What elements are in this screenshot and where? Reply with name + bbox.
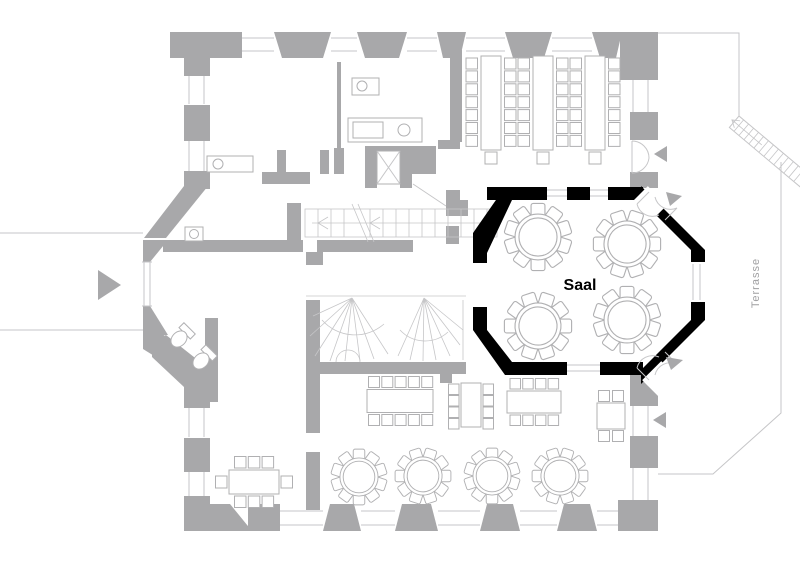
saal-round-table <box>504 203 572 270</box>
entrance-door <box>142 262 152 306</box>
round-table <box>464 448 521 504</box>
terrace-entry-arrow-bottom <box>653 412 666 428</box>
round-table <box>387 441 458 512</box>
entrance-arrow <box>98 270 121 300</box>
terrace-label: Terrasse <box>750 258 762 308</box>
saal-round-table <box>593 286 661 353</box>
arch-door <box>336 350 360 362</box>
floor-plan: Terrasse <box>0 0 800 572</box>
elevator <box>365 146 436 188</box>
horizontal-table-8 <box>507 379 561 426</box>
vertical-table-8 <box>449 383 494 429</box>
table-8-seats <box>216 457 293 508</box>
saal-door-arrow-bottom <box>666 357 683 370</box>
terrace-stairs <box>727 114 800 187</box>
restaurant-tables <box>216 377 626 512</box>
seminar-table <box>466 56 516 164</box>
terrace-entry-arrow-top <box>654 146 667 162</box>
long-table-10 <box>367 377 433 426</box>
main-staircase <box>305 204 497 242</box>
seminar-table <box>518 56 568 164</box>
saal-bay-window <box>687 262 707 302</box>
terrace-edge-top <box>658 33 739 116</box>
partition-line <box>413 184 446 206</box>
floor-plan-page: Terrasse <box>0 0 800 572</box>
round-table <box>331 449 388 505</box>
saal-door-arrow-top <box>666 192 682 206</box>
seminar-double-door <box>632 141 649 173</box>
round-table <box>524 441 595 512</box>
square-table-4 <box>597 391 625 442</box>
saal-label: Saal <box>564 277 597 294</box>
entrance-walkway <box>0 233 143 330</box>
fan-staircase <box>306 296 466 362</box>
saal-round-table <box>495 284 581 369</box>
seminar-table <box>570 56 620 164</box>
terrace: Terrasse <box>658 33 800 474</box>
seminar-seating <box>466 56 620 164</box>
